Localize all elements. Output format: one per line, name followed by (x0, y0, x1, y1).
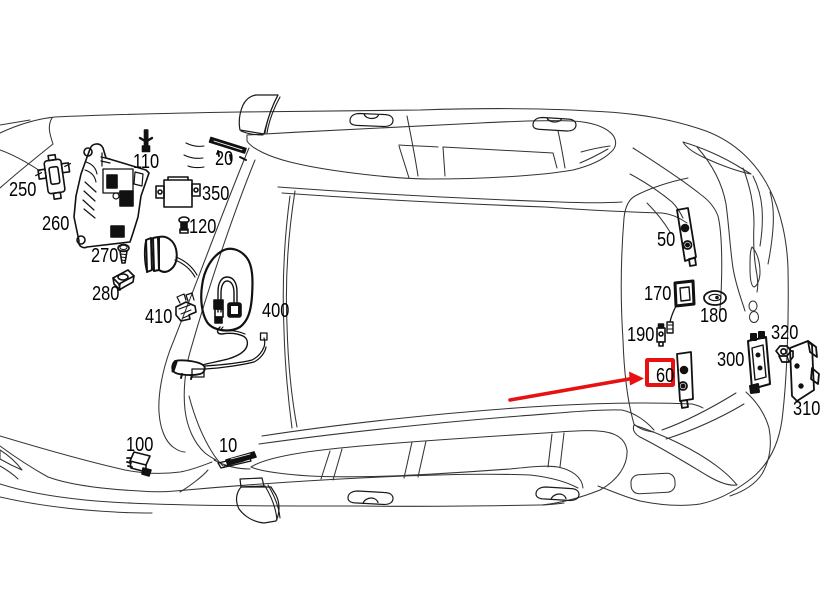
svg-text:10: 10 (219, 433, 237, 456)
svg-text:100: 100 (126, 432, 153, 455)
svg-text:170: 170 (644, 281, 671, 304)
svg-text:350: 350 (202, 181, 229, 204)
svg-text:410: 410 (145, 304, 172, 327)
svg-text:120: 120 (189, 214, 216, 237)
svg-text:60: 60 (656, 363, 674, 386)
svg-text:110: 110 (133, 149, 159, 172)
svg-text:270: 270 (91, 243, 118, 266)
svg-text:190: 190 (627, 322, 654, 345)
svg-text:320: 320 (771, 320, 798, 343)
svg-text:50: 50 (657, 227, 675, 250)
svg-text:260: 260 (42, 211, 69, 234)
svg-text:180: 180 (700, 303, 727, 326)
svg-text:400: 400 (262, 298, 289, 321)
svg-text:20: 20 (215, 146, 233, 169)
svg-text:310: 310 (793, 396, 820, 419)
svg-text:280: 280 (92, 281, 119, 304)
svg-text:300: 300 (717, 347, 744, 370)
svg-text:250: 250 (9, 177, 36, 200)
